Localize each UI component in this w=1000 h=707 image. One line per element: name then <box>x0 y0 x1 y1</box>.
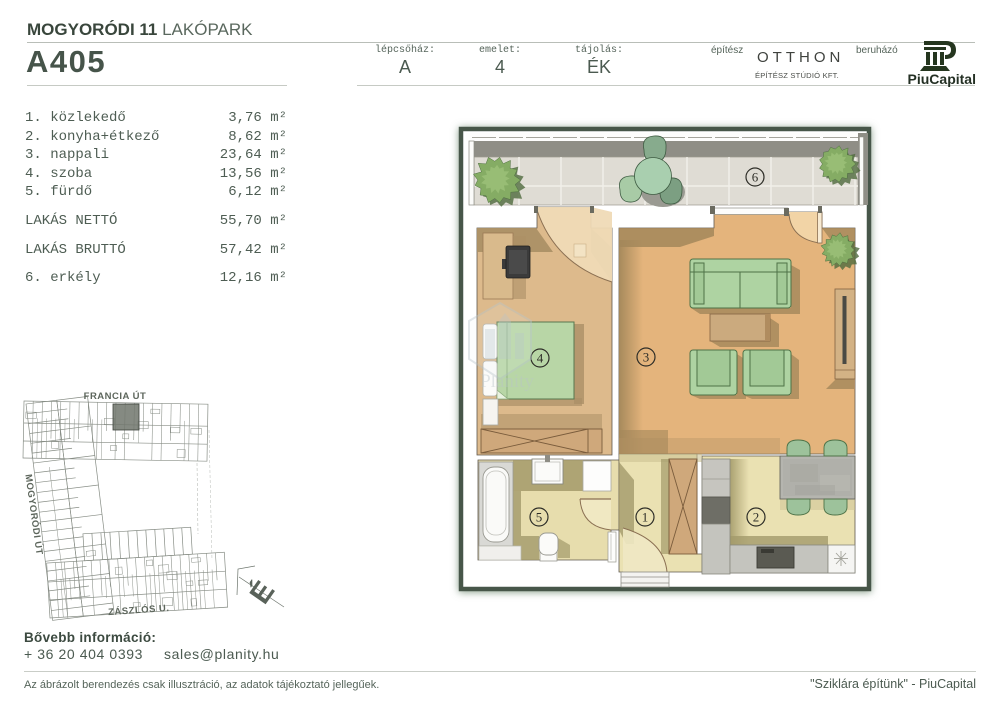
svg-text:3: 3 <box>643 350 650 365</box>
svg-text:É: É <box>242 575 281 610</box>
svg-text:1: 1 <box>642 510 649 525</box>
svg-text:MOGYORÓDI ÚT: MOGYORÓDI ÚT <box>22 473 45 555</box>
svg-text:ZÁSZLÓS U.: ZÁSZLÓS U. <box>108 602 170 618</box>
svg-text:2: 2 <box>753 510 760 525</box>
svg-text:6: 6 <box>752 170 759 185</box>
svg-text:FRANCIA ÚT: FRANCIA ÚT <box>84 390 147 402</box>
svg-text:5: 5 <box>536 510 543 525</box>
svg-text:Planity: Planity <box>480 371 534 392</box>
